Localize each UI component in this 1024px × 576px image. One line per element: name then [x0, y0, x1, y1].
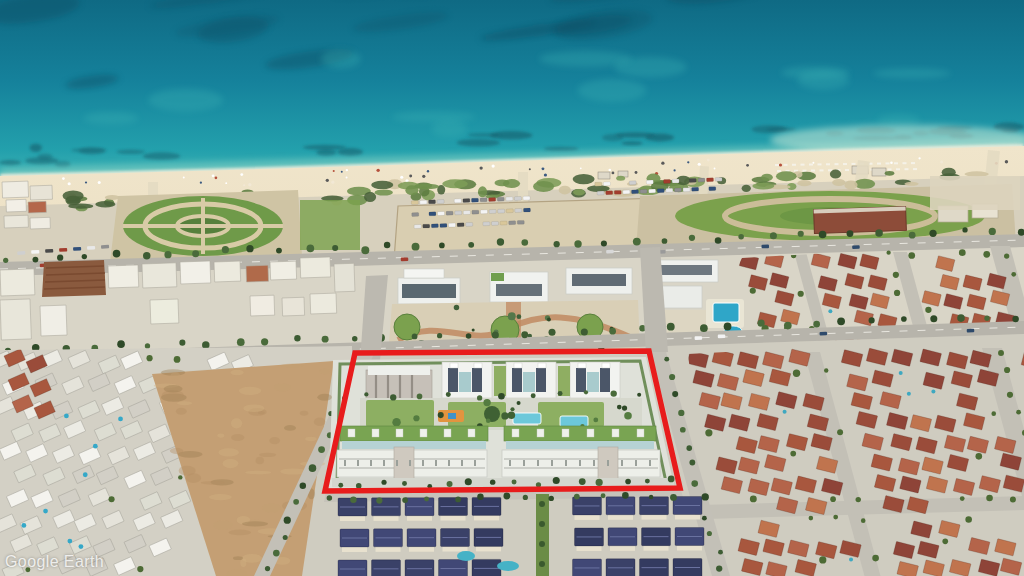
- street-tree: [962, 227, 967, 232]
- garden-tree: [501, 412, 508, 419]
- street-tree: [716, 565, 722, 571]
- dune-scrub: [95, 201, 115, 207]
- blue-roof-house: [372, 560, 401, 576]
- beach-kiosk: [598, 172, 610, 179]
- street-tree: [523, 495, 528, 500]
- column: [370, 460, 372, 466]
- beach-person: [409, 175, 412, 178]
- roof-unit: [562, 429, 569, 437]
- street-tree: [553, 477, 560, 484]
- dirt-patch: [269, 437, 280, 444]
- street-tree: [901, 316, 907, 322]
- column: [607, 460, 609, 466]
- house-wall: [644, 546, 669, 551]
- street-tree: [276, 248, 282, 254]
- house-wall: [374, 516, 399, 521]
- beach-person: [243, 184, 245, 186]
- beach-person: [940, 160, 943, 163]
- roof-unit: [474, 363, 482, 368]
- beach-person: [661, 162, 664, 165]
- street-tree: [455, 497, 461, 503]
- street-tree: [468, 242, 474, 248]
- parked-car: [674, 188, 681, 192]
- roof-unit: [612, 429, 619, 437]
- building-block: [250, 295, 275, 316]
- street-tree: [625, 479, 631, 485]
- building-block: [0, 299, 31, 340]
- sea-light-patch: [539, 51, 632, 67]
- roof-unit: [348, 429, 355, 437]
- street-tree: [609, 328, 616, 335]
- street-tree: [738, 234, 744, 240]
- street-tree: [437, 333, 442, 338]
- beach-person: [544, 173, 547, 176]
- street-tree: [164, 251, 171, 258]
- sunbed: [843, 163, 847, 165]
- car: [967, 329, 975, 333]
- dirt-patch: [233, 556, 243, 560]
- street-tree: [477, 494, 483, 500]
- street-tree: [837, 317, 845, 325]
- parked-car: [698, 178, 705, 182]
- townhouse-dark-section: [576, 368, 586, 392]
- dirt-patch: [213, 520, 232, 530]
- sunbed: [828, 169, 832, 171]
- street-tree: [960, 496, 965, 501]
- parked-car: [623, 190, 630, 194]
- beach-person: [98, 181, 101, 184]
- street-tree: [680, 427, 686, 433]
- parked-car: [715, 177, 722, 181]
- lane-tree: [539, 521, 545, 527]
- street-tree: [284, 517, 291, 524]
- street-tree: [549, 329, 556, 336]
- parked-car: [414, 224, 421, 228]
- beach-person: [333, 170, 335, 172]
- dirt-patch: [231, 434, 244, 441]
- sunbed: [896, 168, 900, 170]
- street-tree: [3, 258, 8, 263]
- dirt-patch: [170, 448, 183, 454]
- street-tree: [872, 555, 879, 562]
- beach-person: [85, 181, 87, 183]
- street-tree: [376, 497, 382, 503]
- parked-car: [480, 198, 487, 202]
- street-tree: [601, 240, 607, 246]
- parked-car: [429, 212, 436, 216]
- roof-unit: [538, 363, 546, 368]
- dirt-patch: [209, 494, 232, 500]
- building-block: [0, 269, 35, 296]
- tree: [819, 556, 826, 563]
- street-tree: [909, 232, 916, 239]
- render-garden: [360, 398, 642, 430]
- roof-unit: [372, 429, 379, 437]
- parked-car: [437, 200, 444, 204]
- dirt-patch: [245, 471, 271, 474]
- street-tree: [649, 495, 653, 499]
- dune-scrub: [503, 179, 520, 188]
- roof-unit: [512, 429, 519, 437]
- parked-car: [649, 189, 656, 193]
- parked-car: [683, 188, 690, 192]
- parked-car: [480, 210, 487, 214]
- street-tree: [293, 499, 299, 505]
- street-tree: [57, 255, 63, 261]
- roof-unit: [578, 363, 586, 368]
- house-wall: [441, 516, 466, 521]
- sunbed: [886, 162, 890, 164]
- street-tree: [332, 245, 338, 251]
- seagrass-patch: [615, 132, 655, 138]
- building-block: [246, 265, 269, 282]
- sunbed: [845, 169, 849, 171]
- playground-mat: [448, 413, 456, 419]
- street-tree: [327, 495, 333, 501]
- seagrass-patch: [468, 133, 501, 137]
- swimming-pool: [713, 303, 739, 322]
- column: [383, 460, 385, 466]
- beach-person: [200, 182, 202, 184]
- beach-person: [479, 166, 482, 169]
- sunbed: [852, 163, 856, 165]
- seagrass-patch: [544, 147, 579, 151]
- column: [461, 460, 463, 466]
- beach-person: [68, 182, 71, 185]
- blue-roof-house: [439, 560, 468, 576]
- villa-pool: [64, 414, 69, 419]
- townhouse-dark-section: [512, 368, 522, 392]
- street-tree: [668, 476, 675, 483]
- street-tree: [847, 230, 854, 237]
- street-tree: [439, 243, 445, 249]
- street-tree: [856, 497, 861, 502]
- house-wall: [642, 515, 667, 520]
- beach-club-building: [814, 206, 907, 233]
- sea-light-patch: [148, 89, 223, 112]
- lane-tree: [539, 501, 545, 507]
- roof-unit: [420, 429, 427, 437]
- parked-car: [597, 191, 604, 195]
- building-block: [28, 201, 46, 213]
- parked-car: [514, 196, 521, 200]
- street-tree: [1012, 316, 1019, 323]
- parked-car: [457, 223, 464, 227]
- building-block: [30, 185, 52, 200]
- garden-tree: [517, 401, 521, 405]
- sunbed: [826, 163, 830, 165]
- garden-tree: [392, 418, 401, 427]
- house-wall: [474, 516, 499, 521]
- tree: [705, 429, 712, 436]
- street-tree: [402, 497, 408, 503]
- parked-car: [431, 224, 438, 228]
- parked-car: [663, 179, 670, 183]
- parked-car: [657, 189, 664, 193]
- parked-car: [515, 208, 522, 212]
- beach-person: [492, 164, 495, 167]
- parked-car: [595, 182, 602, 186]
- street-tree: [1007, 392, 1013, 398]
- street-tree: [498, 393, 505, 400]
- beach-person: [746, 164, 749, 167]
- street-tree: [662, 238, 668, 244]
- street-tree: [664, 357, 669, 362]
- street-tree: [707, 531, 712, 536]
- parked-car: [73, 247, 81, 251]
- sunbed: [894, 162, 898, 164]
- street-tree: [309, 464, 317, 472]
- car: [718, 334, 726, 338]
- roof-unit: [537, 429, 544, 437]
- dune-scrub: [371, 181, 393, 189]
- building-block: [334, 263, 355, 292]
- column: [635, 460, 637, 466]
- parked-car: [640, 189, 647, 193]
- parked-car: [420, 200, 427, 204]
- window-band: [654, 265, 712, 275]
- dune-scrub: [105, 195, 120, 200]
- street-tree: [893, 272, 899, 278]
- building-block: [310, 293, 337, 314]
- seagrass-patch: [457, 139, 500, 147]
- sunbed: [835, 163, 839, 165]
- column: [448, 460, 450, 466]
- column: [474, 460, 476, 466]
- street-tree: [798, 231, 804, 237]
- sunbed: [903, 162, 907, 164]
- street-tree: [222, 246, 229, 253]
- parked-car: [463, 198, 470, 202]
- dune-scrub: [442, 179, 467, 188]
- building-block: [40, 305, 67, 336]
- street-tree: [503, 493, 510, 500]
- street-tree: [412, 243, 420, 251]
- garden-tree: [510, 407, 514, 411]
- beach-person: [612, 171, 615, 174]
- beach-person: [687, 161, 689, 163]
- green-roof: [491, 273, 504, 281]
- street-tree: [724, 323, 732, 331]
- seagrass-patch: [337, 148, 363, 156]
- street-tree: [669, 374, 675, 380]
- parked-car: [440, 223, 447, 227]
- street-tree: [1010, 497, 1016, 503]
- sunbed: [905, 168, 909, 170]
- seagrass-patch: [143, 152, 180, 160]
- new-development-render: [329, 357, 675, 489]
- sunbed: [913, 168, 917, 170]
- car: [606, 250, 614, 254]
- sea-light-patch: [83, 112, 138, 124]
- dirt-patch: [179, 466, 196, 476]
- parked-car: [646, 180, 653, 184]
- street-tree: [497, 238, 504, 245]
- dune-scrub: [375, 189, 393, 195]
- beach-person: [422, 175, 425, 178]
- column: [579, 460, 581, 466]
- house-wall: [677, 546, 702, 551]
- street-tree: [307, 245, 315, 253]
- street-tree: [715, 237, 722, 244]
- beach-kiosk: [872, 168, 886, 176]
- seagrass-patch: [621, 141, 642, 145]
- street-tree: [361, 246, 369, 254]
- street-tree: [466, 333, 472, 339]
- street-tree: [490, 479, 495, 484]
- tree: [146, 355, 152, 361]
- dirt-patch: [305, 437, 317, 442]
- car: [852, 245, 860, 249]
- street-tree: [512, 480, 517, 485]
- private-pool: [899, 371, 903, 375]
- column: [537, 460, 539, 466]
- parked-car: [500, 221, 507, 225]
- seagrass-patch: [303, 145, 346, 150]
- building-block: [150, 299, 179, 324]
- roof-unit: [396, 429, 403, 437]
- parked-car: [603, 182, 610, 186]
- street-tree: [1004, 367, 1010, 373]
- building-block: [142, 263, 177, 288]
- seagrass-patch: [71, 148, 107, 152]
- roof-unit: [637, 429, 644, 437]
- parked-car: [45, 249, 53, 253]
- tree: [942, 539, 948, 545]
- parked-car: [606, 191, 613, 195]
- beach-person: [714, 168, 716, 170]
- parked-car: [666, 188, 673, 192]
- street-tree: [637, 393, 641, 397]
- seagrass-patch: [116, 150, 145, 154]
- garden-tree: [483, 399, 490, 406]
- dune-scrub: [830, 170, 841, 179]
- street-tree: [691, 480, 698, 487]
- dune-scrub: [776, 171, 797, 181]
- tree: [109, 496, 115, 502]
- window-band: [496, 284, 542, 296]
- street-tree: [113, 250, 121, 258]
- street-tree: [579, 478, 586, 485]
- dirt-patch: [259, 453, 276, 457]
- street-tree: [819, 231, 827, 239]
- street-tree: [1011, 272, 1016, 277]
- parked-car: [498, 209, 505, 213]
- sunbed: [784, 164, 788, 166]
- house-wall: [575, 515, 600, 520]
- street-tree: [886, 250, 890, 254]
- dune-scrub: [573, 189, 585, 196]
- building-block: [300, 257, 331, 278]
- street-tree: [32, 257, 38, 263]
- street-tree: [554, 241, 560, 247]
- beach-person: [529, 168, 531, 170]
- dune-scrub: [559, 186, 571, 195]
- beach-person: [346, 177, 348, 179]
- parked-car: [706, 178, 713, 182]
- street-tree: [364, 392, 368, 396]
- beach-person: [341, 171, 343, 173]
- townhouse-dark-section: [600, 368, 610, 392]
- dirt-patch: [242, 554, 262, 563]
- sea-light-patch: [877, 115, 920, 127]
- shrub: [547, 318, 551, 322]
- column: [409, 460, 411, 466]
- parked-car: [17, 251, 25, 255]
- street-tree: [670, 494, 677, 501]
- dirt-patch: [314, 418, 326, 427]
- parked-car: [412, 213, 419, 217]
- dune-scrub: [844, 180, 857, 189]
- parked-car: [517, 220, 524, 224]
- parked-car: [709, 187, 716, 191]
- parked-car: [489, 209, 496, 213]
- sea-light-patch: [873, 68, 951, 78]
- street-tree: [192, 250, 199, 257]
- street-tree: [718, 550, 723, 555]
- park-lawn-panel: [300, 200, 360, 250]
- beach-person: [673, 169, 675, 171]
- beach-person: [212, 174, 215, 177]
- house-wall: [443, 547, 468, 552]
- dirt-patch: [284, 425, 296, 431]
- dirt-patch: [281, 364, 304, 368]
- blue-roof-house: [472, 559, 501, 576]
- beach-person: [1005, 160, 1008, 163]
- parked-car: [463, 210, 470, 214]
- house-wall: [675, 515, 700, 520]
- column: [593, 460, 595, 466]
- beach-person: [183, 177, 185, 179]
- street-tree: [338, 483, 343, 488]
- dune-scrub: [364, 192, 376, 202]
- dirt-patch: [274, 383, 291, 391]
- street-tree: [584, 390, 588, 394]
- column: [344, 460, 346, 466]
- sunbed: [818, 163, 822, 165]
- building-block: [108, 265, 139, 288]
- house-wall: [342, 548, 367, 553]
- street-tree: [930, 315, 937, 322]
- street-tree: [179, 340, 185, 346]
- tree: [750, 288, 756, 294]
- sea-light-patch: [577, 79, 646, 102]
- column: [649, 460, 651, 466]
- tree: [178, 475, 182, 479]
- parked-car: [483, 222, 490, 226]
- dirt-patch: [170, 372, 180, 380]
- shrub: [472, 328, 475, 331]
- street-tree: [837, 429, 843, 435]
- dirt-patch: [243, 404, 264, 412]
- parked-car: [523, 196, 530, 200]
- dirt-patch: [262, 504, 281, 513]
- street-tree: [261, 338, 268, 345]
- beach-person: [580, 167, 582, 169]
- window-band: [402, 284, 456, 298]
- parked-car: [672, 179, 679, 183]
- sunbed: [809, 164, 813, 166]
- private-pool: [828, 309, 832, 313]
- sunbed: [877, 163, 881, 165]
- street-tree: [117, 340, 125, 348]
- roof-unit: [602, 363, 610, 368]
- street-tree: [352, 336, 357, 341]
- seagrass-patch: [30, 144, 42, 152]
- tilled-field: [42, 260, 106, 297]
- parked-car: [455, 211, 462, 215]
- parked-car: [446, 211, 453, 215]
